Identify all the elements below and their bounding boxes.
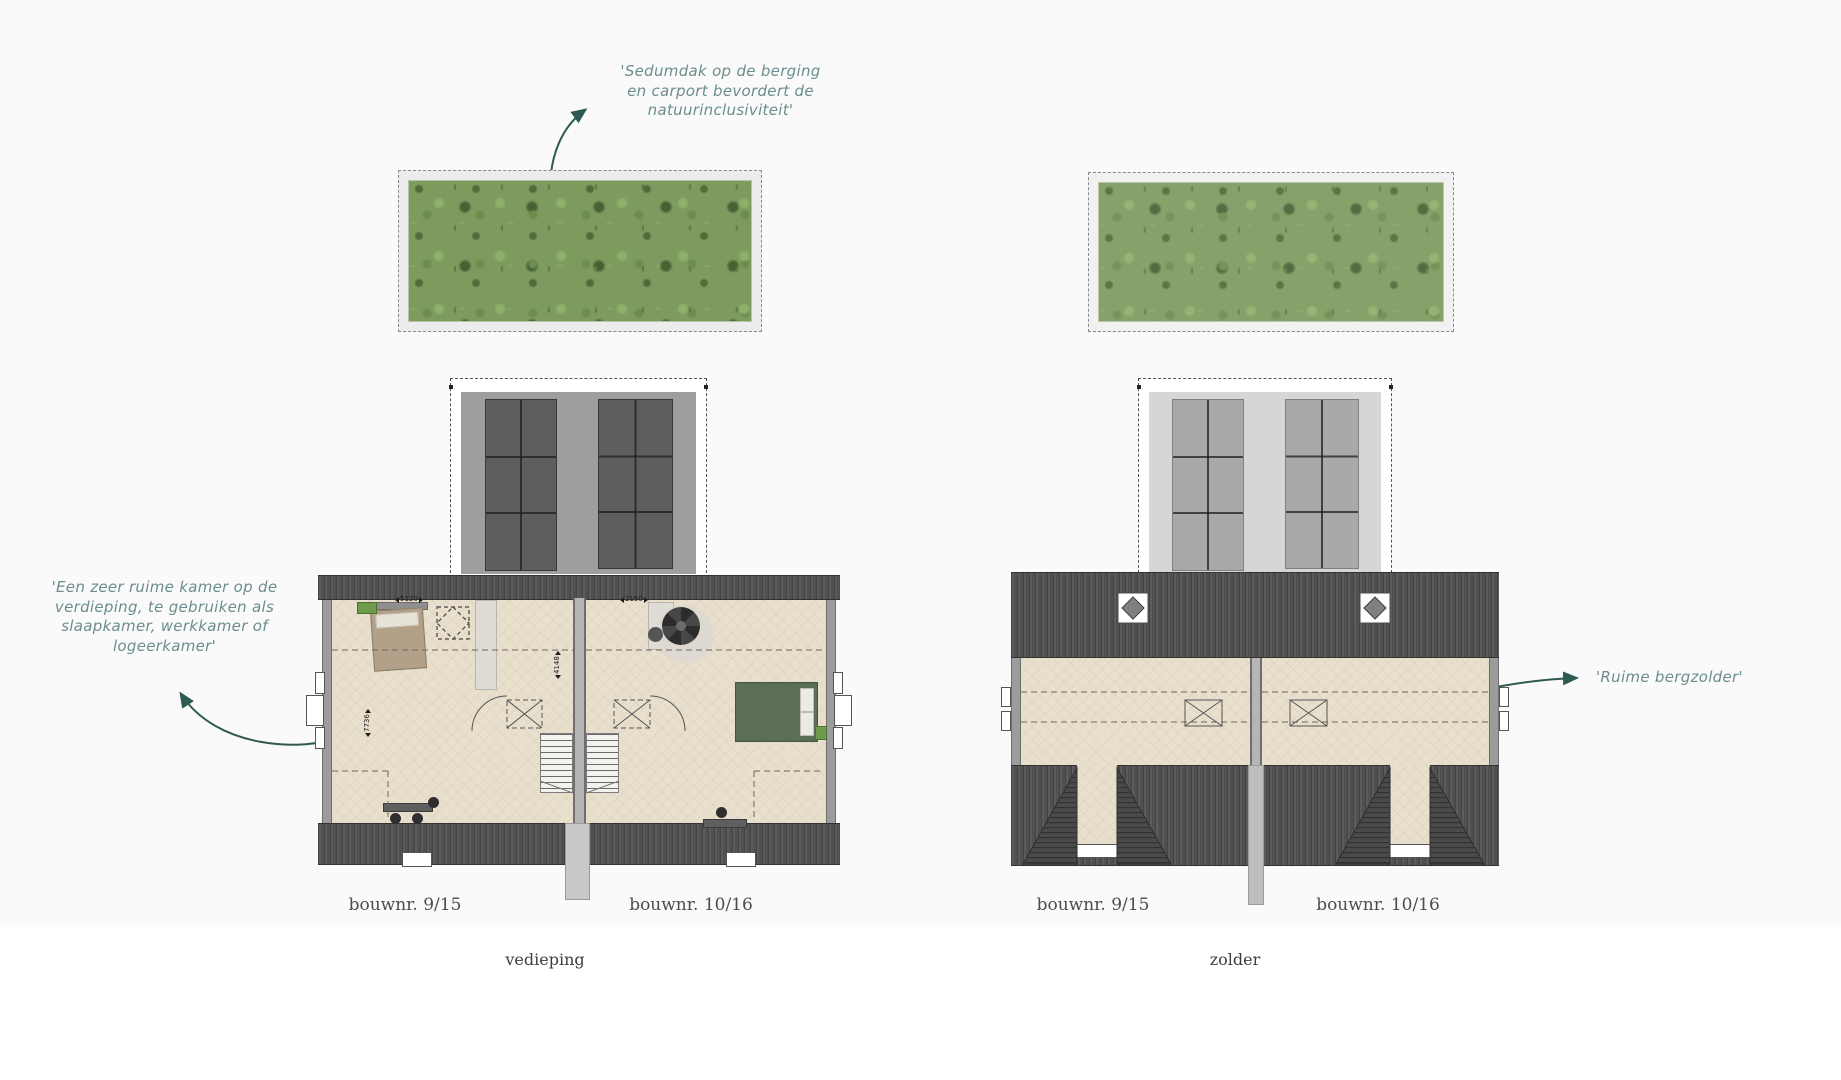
window <box>1001 711 1011 731</box>
chair <box>412 813 423 824</box>
chair <box>428 797 439 808</box>
party-wall <box>1250 658 1262 765</box>
closet <box>475 600 497 690</box>
floorplan-sheet: 'Sedumdak op de berging en carport bevor… <box>0 0 1841 1080</box>
window <box>833 727 843 749</box>
dormer-window-left <box>1172 399 1244 571</box>
dim-arrow <box>419 597 423 603</box>
dormer-verdieping <box>450 378 707 578</box>
label-bouwnr-right-plan-unit1: bouwnr. 9/15 <box>1037 895 1150 915</box>
window <box>315 727 325 749</box>
bed <box>735 682 818 742</box>
caption-verdieping: vedieping <box>505 950 584 969</box>
desk <box>383 803 433 812</box>
pillow <box>800 712 814 736</box>
annotation-arrows <box>0 0 1841 1080</box>
window <box>1499 711 1509 731</box>
window-bay <box>306 695 324 726</box>
dim-arrow <box>644 597 648 603</box>
dim-arrow <box>555 651 561 655</box>
dormer-window-right <box>598 399 673 569</box>
sedum-green-texture <box>408 180 752 322</box>
sedum-roof-right <box>1088 172 1454 332</box>
room-note-line: verdieping, te gebruiken als <box>42 598 287 618</box>
room-note: 'Een zeer ruime kamer op de verdieping, … <box>42 578 287 656</box>
roof-plane-top <box>1011 572 1499 658</box>
dimension-width-right: 2150 <box>620 596 648 603</box>
plan-verdieping: 5120 2150 7736 4148 <box>318 575 840 868</box>
corner-dot <box>449 385 453 389</box>
window <box>726 852 756 867</box>
dimension-width-left: 5120 <box>395 596 423 603</box>
wall-right <box>1489 652 1499 771</box>
room-note-line: 'Een zeer ruime kamer op de <box>42 578 287 598</box>
wall-left <box>1011 652 1021 771</box>
dim-arrow <box>395 597 399 603</box>
plant <box>357 602 377 614</box>
dimension-depth-center: 4148 <box>554 651 561 679</box>
sedum-note-line: en carport bevordert de <box>608 82 833 102</box>
staircase-right-unit <box>586 733 619 793</box>
caption-zolder: zolder <box>1210 950 1261 969</box>
bed <box>370 607 427 672</box>
dormer-window-right <box>1285 399 1359 569</box>
dim-arrow <box>365 709 371 713</box>
plant <box>815 726 827 740</box>
chair <box>390 813 401 824</box>
dim-arrow <box>365 733 371 737</box>
chimney <box>1248 765 1264 905</box>
staircase-left-unit <box>540 733 573 793</box>
dimension-depth-left: 7736 <box>364 709 371 737</box>
room-note-line: slaapkamer, werkkamer of <box>42 617 287 637</box>
window <box>1001 687 1011 707</box>
side-table <box>648 627 663 642</box>
label-bouwnr-right-plan-unit2: bouwnr. 10/16 <box>1316 895 1440 915</box>
window <box>1499 687 1509 707</box>
sedum-green-texture <box>1098 182 1444 322</box>
dim-arrow <box>555 675 561 679</box>
window <box>402 852 432 867</box>
window-bay <box>834 695 852 726</box>
chair <box>716 807 727 818</box>
label-bouwnr-left-plan-unit1: bouwnr. 9/15 <box>349 895 462 915</box>
room-note-line: logeerkamer' <box>42 637 287 657</box>
chimney <box>565 823 590 900</box>
sedum-roof-left <box>398 170 762 332</box>
corner-dot <box>704 385 708 389</box>
corner-dot <box>1137 385 1141 389</box>
window <box>1071 844 1123 858</box>
dormer-zolder <box>1138 378 1392 578</box>
sedum-note-line: 'Sedumdak op de berging <box>608 62 833 82</box>
attic-note: 'Ruime bergzolder' <box>1596 668 1766 688</box>
dormer-corridor-left <box>1077 765 1117 845</box>
desk <box>703 819 747 828</box>
dim-arrow <box>620 597 624 603</box>
ceiling-lamp <box>662 607 700 645</box>
sedum-note-line: natuurinclusiviteit' <box>608 101 833 121</box>
dormer-window-left <box>485 399 557 571</box>
plan-zolder <box>1003 572 1507 868</box>
dormer-corridor-right <box>1390 765 1430 845</box>
window <box>833 672 843 694</box>
label-bouwnr-left-plan-unit2: bouwnr. 10/16 <box>629 895 753 915</box>
window <box>1384 844 1436 858</box>
party-wall <box>573 598 586 824</box>
window <box>315 672 325 694</box>
attic-note-line: 'Ruime bergzolder' <box>1596 668 1766 688</box>
corner-dot <box>1389 385 1393 389</box>
sedum-note: 'Sedumdak op de berging en carport bevor… <box>608 62 833 121</box>
pillow <box>375 612 419 629</box>
pillow <box>800 688 814 712</box>
